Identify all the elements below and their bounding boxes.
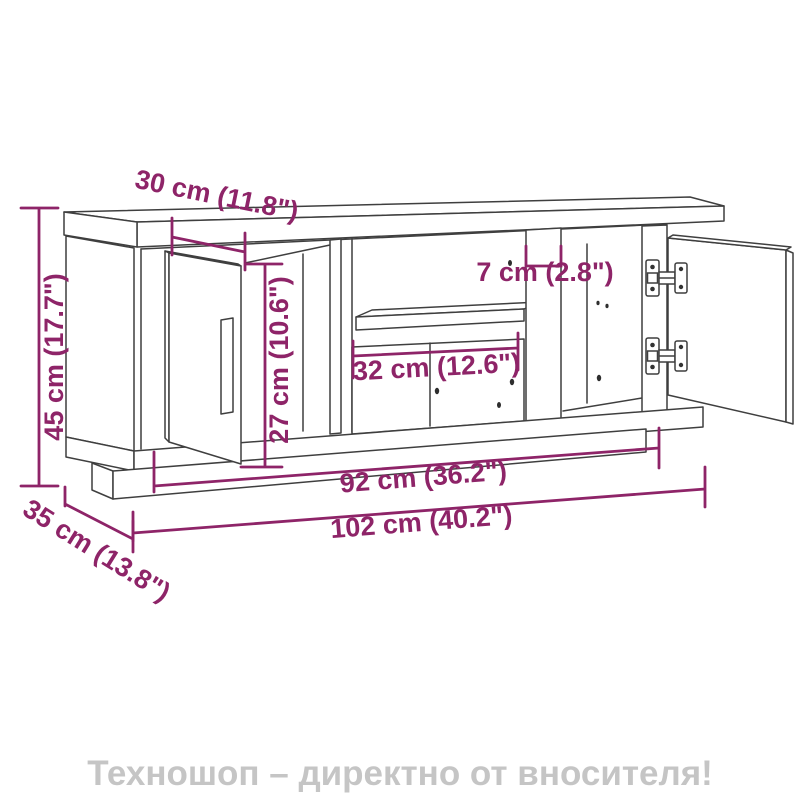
- dimension-label: 102 cm (40.2"): [329, 500, 513, 544]
- dimension-label: 27 cm (10.6"): [264, 276, 294, 443]
- right-front-stile: [642, 225, 667, 414]
- middle-divider: [330, 238, 352, 434]
- dimension-label: 35 cm (13.8"): [18, 493, 176, 607]
- tv-cabinet-drawing: 45 cm (17.7") 30 cm (11.8") 27 cm (10.6"…: [0, 0, 800, 800]
- top-panel: [64, 197, 724, 247]
- dimension-label: 7 cm (2.8"): [476, 257, 613, 287]
- dim-height-45cm: 45 cm (17.7"): [21, 208, 69, 486]
- left-door-open: [165, 251, 241, 464]
- dim-inner-height-27cm: 27 cm (10.6"): [241, 264, 294, 467]
- product-dimension-diagram: 45 cm (17.7") 30 cm (11.8") 27 cm (10.6"…: [0, 0, 800, 800]
- dimension-label: 45 cm (17.7"): [39, 273, 69, 440]
- tv-shelf: [356, 302, 540, 330]
- door-handle-groove: [221, 318, 233, 414]
- dim-depth-35cm: 35 cm (13.8"): [18, 487, 176, 607]
- footer-banner: Техношоп – директно от вносителя!: [0, 748, 800, 800]
- footer-brand-text: Техношоп – директно от вносителя!: [87, 754, 713, 794]
- left-side-panel: [66, 236, 141, 451]
